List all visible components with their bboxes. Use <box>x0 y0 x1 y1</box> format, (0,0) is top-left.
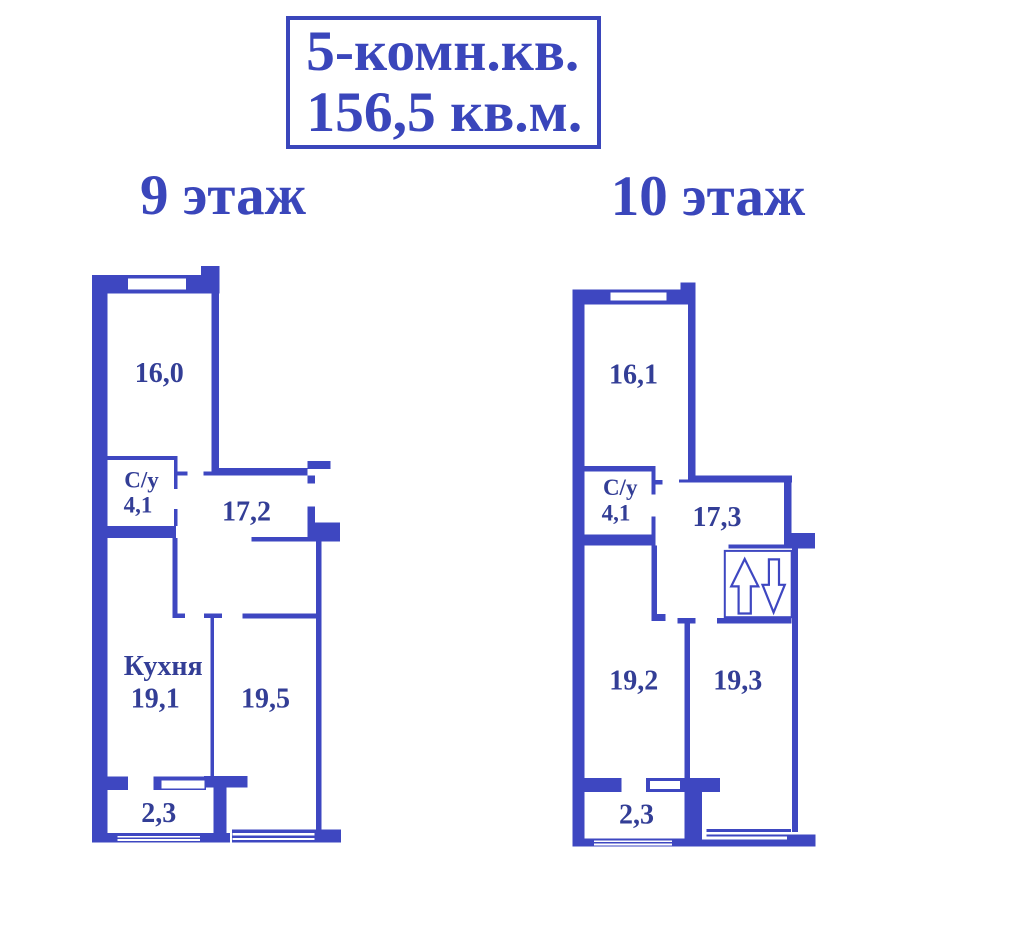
svg-text:19,5: 19,5 <box>241 684 290 715</box>
svg-text:С/у: С/у <box>124 468 159 493</box>
svg-text:19,3: 19,3 <box>713 665 762 696</box>
svg-text:17,2: 17,2 <box>222 497 271 528</box>
svg-text:16,0: 16,0 <box>135 358 184 389</box>
svg-text:9 этаж: 9 этаж <box>140 164 307 227</box>
svg-text:19,2: 19,2 <box>609 665 658 696</box>
svg-text:10 этаж: 10 этаж <box>611 165 806 228</box>
svg-text:Кухня: Кухня <box>124 651 203 682</box>
svg-text:4,1: 4,1 <box>602 501 631 526</box>
svg-text:17,3: 17,3 <box>693 502 742 533</box>
svg-text:19,1: 19,1 <box>131 684 180 715</box>
svg-text:4,1: 4,1 <box>124 493 153 518</box>
svg-text:16,1: 16,1 <box>609 360 658 391</box>
svg-text:156,5 кв.м.: 156,5 кв.м. <box>306 81 582 144</box>
svg-text:5-комн.кв.: 5-комн.кв. <box>306 20 579 83</box>
svg-text:С/у: С/у <box>603 475 638 500</box>
svg-text:2,3: 2,3 <box>141 798 176 829</box>
svg-text:2,3: 2,3 <box>619 799 654 830</box>
